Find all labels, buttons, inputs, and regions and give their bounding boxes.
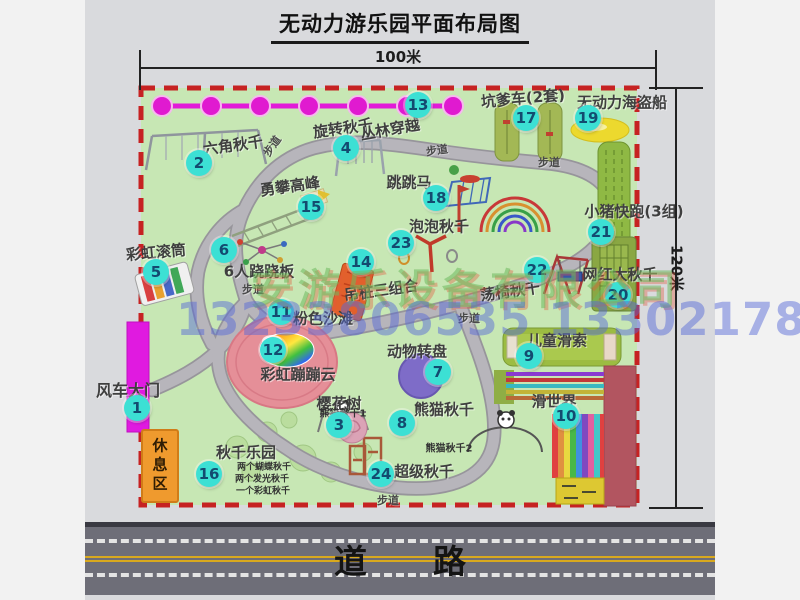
height-measure-tick-top — [649, 87, 703, 89]
attraction-badge-18: 18 — [423, 185, 449, 211]
height-measure-tick-bottom — [649, 507, 703, 509]
attraction-badge-6: 6 — [211, 237, 237, 263]
attraction-badge-15: 15 — [298, 194, 324, 220]
width-measure-tick-left — [139, 50, 141, 90]
page-title: 无动力游乐园平面布局图 — [271, 8, 529, 44]
width-measure-line — [140, 67, 656, 69]
road: 道 路 — [85, 522, 715, 595]
attraction-badge-13: 13 — [405, 92, 431, 118]
attraction-badge-9: 9 — [516, 343, 542, 369]
attraction-label-23: 泡泡秋千 — [409, 216, 469, 237]
walkway-label-3: 步道 — [538, 154, 560, 170]
rest-area-label: 休息区 — [150, 438, 171, 495]
attraction-badge-8: 8 — [389, 410, 415, 436]
attraction-badge-24: 24 — [368, 461, 394, 487]
sub-label-5: 一个彩虹秋千 — [236, 484, 290, 497]
attraction-label-24: 超级秋千 — [394, 461, 454, 482]
attraction-badge-2: 2 — [186, 150, 212, 176]
park-layout-map: 无动力游乐园平面布局图 100米 120米 — [0, 0, 800, 600]
attraction-badge-21: 21 — [588, 219, 614, 245]
attraction-badge-1: 1 — [124, 395, 150, 421]
attraction-badge-3: 3 — [326, 412, 352, 438]
attraction-badge-17: 17 — [513, 105, 539, 131]
width-measure-label: 100米 — [375, 46, 421, 67]
road-label: 道 路 — [334, 535, 466, 583]
attraction-badge-16: 16 — [196, 461, 222, 487]
sub-label-2: 熊猫秋千2 — [426, 440, 473, 455]
width-measure-tick-right — [655, 50, 657, 90]
attraction-badge-10: 10 — [553, 403, 579, 429]
watermark-phone: 13233806535 13302178333 — [176, 293, 800, 346]
walkway-label-6: 步道 — [377, 492, 399, 508]
attraction-label-8: 熊猫秋千 — [414, 399, 474, 420]
attraction-badge-7: 7 — [425, 359, 451, 385]
walkway-label-2: 步道 — [425, 141, 449, 160]
attraction-label-12: 彩虹蹦蹦云 — [260, 364, 335, 385]
attraction-badge-19: 19 — [575, 105, 601, 131]
attraction-badge-23: 23 — [388, 230, 414, 256]
attraction-badge-4: 4 — [333, 135, 359, 161]
attraction-badge-5: 5 — [143, 259, 169, 285]
